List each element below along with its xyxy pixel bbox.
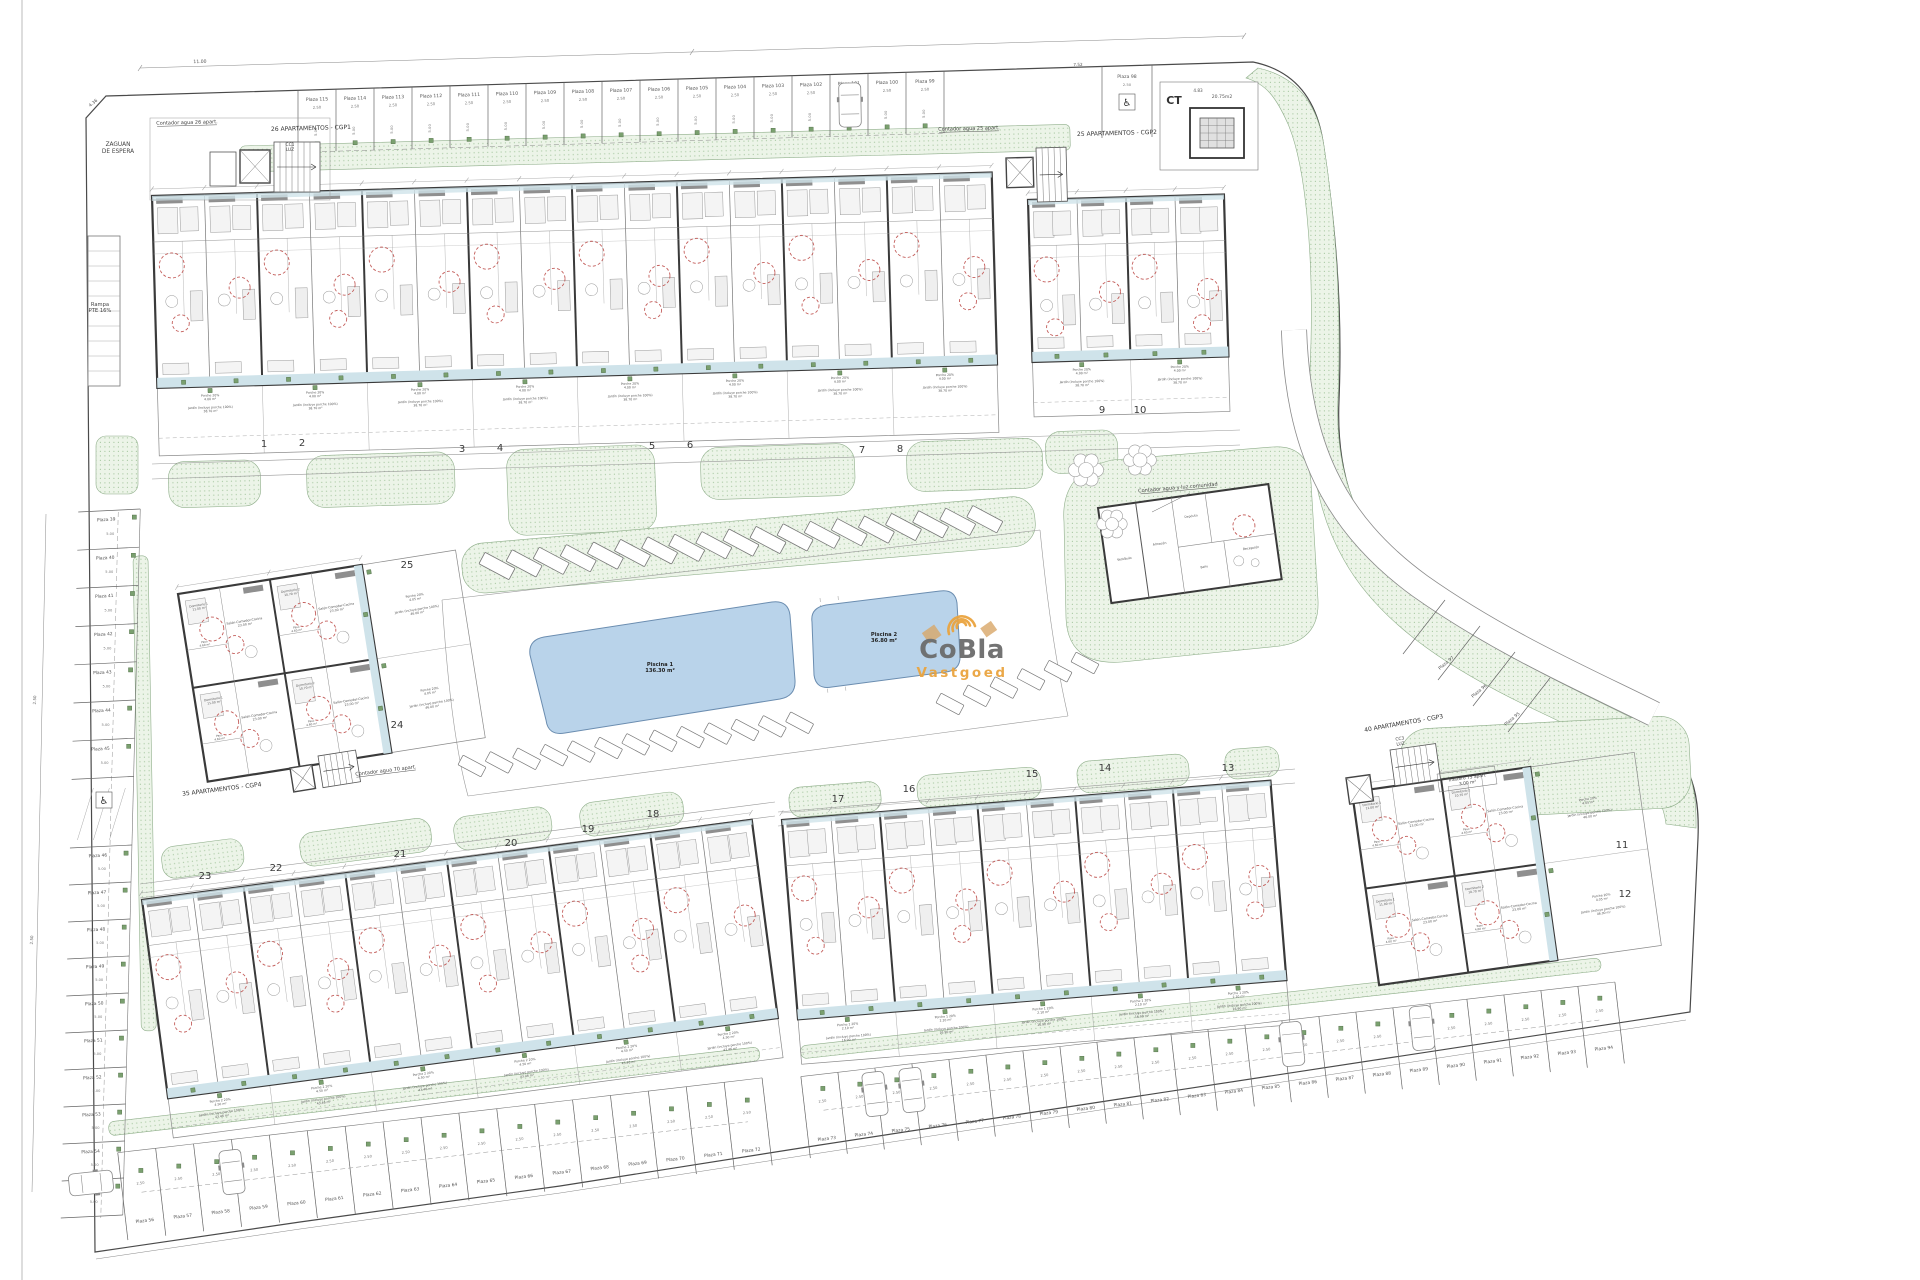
text-label: 5.00: [98, 867, 107, 871]
green-area: [298, 817, 433, 868]
plaza-label: Plaza 114: [344, 95, 367, 102]
accessible-icon: ♿: [100, 796, 109, 807]
text-label: Porche 20%4.00 m²: [621, 381, 640, 389]
plaza-label: Plaza 98: [1117, 74, 1136, 80]
plaza-label: Plaza 108: [572, 89, 595, 96]
text-label: Jardín (incluye porche 100%)46.00 m²: [393, 604, 439, 619]
text-label: 2.50: [250, 1168, 259, 1173]
text-label: 2.50: [503, 99, 512, 104]
text-label: 2.50: [693, 93, 702, 98]
plaza-label: Plaza 48: [87, 927, 106, 934]
text-label: 5.00: [731, 115, 736, 124]
text-label: 2.50: [883, 88, 892, 93]
elevator: [240, 150, 270, 183]
text-label: 2.50: [1262, 1047, 1271, 1052]
plaza-label: Plaza 62: [363, 1191, 382, 1199]
text-label: Porche 20%4.05 m²: [405, 592, 424, 602]
text-label: Porche 1 20%2.10 m²: [1032, 1006, 1054, 1015]
text-label: 2.50: [1040, 1073, 1049, 1078]
text-label: 5.00: [105, 570, 114, 574]
plaza-label: Plaza 60: [287, 1199, 306, 1207]
text-label: 2.50: [326, 1159, 335, 1164]
dim-label: 7.52: [1073, 62, 1083, 67]
text-label: Porche 2 20%4.50 m²: [717, 1030, 739, 1040]
cgp2-label: 25 APARTAMENTOS - CGP2: [1077, 129, 1157, 138]
text-label: 2.50: [1225, 1051, 1234, 1056]
car: [68, 1168, 114, 1198]
text-label: Porche 1 20%2.10 m²: [837, 1022, 859, 1031]
plaza-label: Plaza 56: [135, 1217, 154, 1225]
plaza-label: Plaza 61: [325, 1195, 344, 1203]
building-number-6: 6: [687, 440, 693, 451]
plaza-label: Plaza 57: [173, 1213, 192, 1221]
plaza-label: Plaza 53: [82, 1112, 101, 1119]
text-label: Porche 20%4.00 m²: [831, 376, 850, 384]
text-label: 2.50: [629, 1124, 638, 1129]
text-label: Jardín (incluye porche 100%)38.70 m²: [712, 390, 758, 399]
ct-area: 20.75m2: [1212, 94, 1233, 100]
text-label: 5.00: [90, 1200, 99, 1204]
ct-label: CT: [1166, 94, 1182, 107]
building-number-14: 14: [1099, 763, 1112, 774]
plaza-label: Plaza 110: [496, 91, 519, 98]
text-label: Porche 20%4.05 m²: [420, 686, 439, 696]
plaza-label: Plaza 68: [590, 1164, 609, 1172]
text-label: 5.00: [693, 116, 698, 125]
text-label: 5.00: [104, 608, 113, 612]
green-area: [168, 460, 261, 508]
text-label: 5.00: [106, 532, 115, 536]
plaza-label: Plaza 78: [1002, 1113, 1021, 1121]
building-number-3: 3: [459, 444, 465, 455]
text-label: 2.50: [1123, 82, 1132, 87]
plaza-label: Plaza 82: [1150, 1096, 1169, 1104]
plaza-label: Plaza 58: [211, 1208, 230, 1216]
plaza-label: Plaza 70: [666, 1155, 685, 1163]
text-label: Porche 20%4.00 m²: [726, 379, 745, 387]
plaza-label: Plaza 50: [85, 1001, 104, 1008]
text-label: 5.00: [94, 1015, 103, 1019]
building-number-7: 7: [859, 445, 865, 456]
text-label: 2.50: [667, 1119, 676, 1124]
text-label: 2.50: [591, 1128, 600, 1133]
building-number-2: 2: [299, 438, 305, 449]
text-label: 2.50: [313, 105, 322, 110]
plaza-label: Plaza 102: [800, 82, 823, 89]
elevator: [1006, 157, 1034, 187]
text-label: Jardín (incluye porche 100%)38.70 m²: [187, 405, 233, 414]
building-number-4: 4: [497, 443, 503, 454]
text-label: 5.00: [351, 126, 356, 135]
pool-label: Piscina 1136.30 m²: [645, 662, 675, 674]
plaza-label: Plaza 83: [1187, 1092, 1206, 1100]
plaza-label: Plaza 65: [476, 1177, 495, 1185]
building-block-13-17: Porche 1 20%2.10 m²Jardín (incluye porch…: [779, 771, 1292, 1064]
text-label: 2.50: [1188, 1056, 1197, 1061]
plaza-label: Plaza 87: [1335, 1075, 1354, 1083]
building-block-9-10: Porche 20%4.00 m²Jardín (incluye porche …: [1026, 185, 1232, 417]
text-label: 2.50: [1003, 1077, 1012, 1082]
text-label: Porche 2 20%4.50 m²: [413, 1070, 435, 1080]
dim-label: 4.83: [1193, 88, 1203, 93]
plaza-label: Plaza 106: [648, 86, 671, 93]
text-label: 2.50: [921, 87, 930, 92]
plaza-label: Plaza 113: [382, 94, 405, 101]
text-label: 2.50: [1151, 1060, 1160, 1065]
elevator: [290, 765, 316, 792]
building-number-23: 23: [199, 871, 212, 882]
text-label: 2.50: [288, 1163, 297, 1168]
text-label: Jardín (incluye porche 100%)38.70 m²: [292, 402, 338, 411]
cobla-logo-name: CoBla: [916, 637, 1008, 664]
text-label: Porche 20%4.00 m²: [936, 373, 955, 381]
building-number-25: 25: [401, 560, 414, 571]
building-number-22: 22: [270, 863, 283, 874]
stairs: [1036, 147, 1067, 202]
text-label: 5.00: [617, 118, 622, 127]
text-label: 2.50: [136, 1181, 145, 1186]
text-label: 5.00: [102, 723, 111, 727]
building-number-24: 24: [391, 720, 404, 731]
text-label: 2.50: [465, 100, 474, 105]
site-plan-sheet: Plaza 1152.505.00Plaza 1142.505.00Plaza …: [0, 0, 1920, 1280]
dim-label: 4.36: [88, 98, 100, 109]
plaza-label: Plaza 49: [86, 964, 105, 971]
text-label: 5.00: [465, 122, 470, 131]
building-number-12: 12: [1619, 889, 1632, 900]
text-label: 5.00: [769, 113, 774, 122]
plaza-label: Plaza 94: [1594, 1045, 1613, 1053]
pool-area: Piscina 1136.30 m²Piscina 236.80 m²: [530, 591, 960, 734]
plaza-label: Plaza 81: [1113, 1101, 1132, 1109]
text-label: Porche 20%4.00 m²: [1073, 367, 1092, 375]
walkway-line: [1040, 530, 1068, 716]
plaza-label: Plaza 46: [88, 853, 107, 860]
text-label: 2.50: [212, 1172, 221, 1177]
logo-spiral: [948, 616, 975, 634]
building-number-19: 19: [582, 824, 595, 835]
plaza-label: Plaza 86: [1298, 1079, 1317, 1087]
text-label: 2.50: [553, 1132, 562, 1137]
text-label: Porche 2 20%4.50 m²: [209, 1097, 231, 1107]
plaza-label: Plaza 109: [534, 90, 557, 97]
car: [837, 83, 864, 127]
text-label: 5.00: [807, 112, 812, 121]
building-number-21: 21: [394, 849, 407, 860]
plaza-label: Plaza 45: [91, 746, 110, 753]
cc1-label: CC1LUZ: [286, 142, 295, 153]
zaguan-label: ZAGUANDE ESPERA: [102, 142, 134, 155]
plaza-label: Plaza 115: [306, 96, 329, 103]
plaza-label: Plaza 77: [965, 1118, 984, 1126]
text-label: 5.00: [93, 1052, 102, 1056]
building-number-20: 20: [505, 838, 518, 849]
plaza-label: Plaza 76: [928, 1122, 947, 1130]
text-label: 2.50: [1484, 1021, 1493, 1026]
plaza-label: Plaza 92: [1520, 1053, 1539, 1061]
text-label: 5.00: [883, 110, 888, 119]
green-area: [306, 451, 456, 508]
green-area: [452, 805, 554, 852]
text-label: 2.50: [389, 102, 398, 107]
car: [859, 1071, 890, 1118]
text-label: 2.50: [655, 94, 664, 99]
building-number-10: 10: [1134, 405, 1147, 416]
cgp1-label: 26 APARTAMENTOS - CGP1: [271, 124, 351, 133]
text-label: 2.50: [364, 1154, 373, 1159]
plaza-label: Plaza 100: [876, 80, 899, 87]
text-label: 2.50: [807, 90, 816, 95]
stairs: [318, 750, 361, 788]
text-label: 2.50: [1077, 1069, 1086, 1074]
text-label: 5.00: [102, 685, 111, 689]
plaza-label: Plaza 54: [81, 1149, 100, 1156]
stairs: [274, 142, 320, 192]
building-block-24-25: Porche 20%4.05 m²Jardín (incluye porche …: [175, 541, 486, 782]
green-area: [96, 436, 138, 494]
green-area: [506, 444, 657, 536]
text-label: 2.50: [1558, 1013, 1567, 1018]
dim-label: 2.50: [32, 695, 37, 705]
text-label: 2.50: [515, 1137, 524, 1142]
text-label: 2.50: [966, 1082, 975, 1087]
text-label: 2.50: [351, 103, 360, 108]
text-label: Porche 20%4.00 m²: [201, 393, 220, 401]
plaza-label: Plaza 107: [610, 87, 633, 94]
plaza-label: Plaza 63: [401, 1186, 420, 1194]
text-label: 5.00: [427, 124, 432, 133]
text-label: Porche 20%4.00 m²: [1171, 365, 1190, 373]
plaza-label: Plaza 88: [1372, 1070, 1391, 1078]
text-label: 5.00: [655, 117, 660, 126]
building-number-16: 16: [903, 784, 916, 795]
plaza-label: Plaza 71: [704, 1151, 723, 1159]
plaza-label: Plaza 69: [628, 1160, 647, 1168]
plaza-label: Plaza 84: [1224, 1088, 1243, 1096]
cc3-label: CC3LUZ: [1395, 735, 1406, 747]
text-label: 5.00: [503, 121, 508, 130]
text-label: Jardín (incluye porche 100%)46.00 m²: [1580, 904, 1626, 918]
text-label: 2.50: [579, 97, 588, 102]
plaza-label: Plaza 89: [1409, 1066, 1428, 1074]
text-label: Jardín (incluye porche 100%)38.70 m²: [922, 384, 968, 393]
text-label: 2.50: [402, 1150, 411, 1155]
plaza-label: Plaza 51: [84, 1038, 103, 1045]
car: [1407, 1005, 1437, 1051]
text-label: 2.50: [477, 1141, 486, 1146]
plaza-label: Plaza 43: [93, 669, 112, 676]
text-label: Jardín (incluye porche 100%)38.70 m²: [397, 399, 443, 408]
green-area: [906, 438, 1044, 492]
plaza-label: Plaza 96: [1470, 683, 1488, 700]
pool-label: Piscina 236.80 m²: [871, 632, 898, 644]
text-label: 5.00: [97, 904, 106, 908]
elevator: [1346, 775, 1373, 804]
text-label: 2.50: [1336, 1039, 1345, 1044]
text-label: Jardín (incluye porche 100%)46.00 m²: [408, 698, 454, 713]
text-label: Porche 20%4.00 m²: [306, 390, 325, 398]
plaza-label: Plaza 111: [458, 92, 481, 99]
text-label: 2.50: [818, 1099, 827, 1104]
text-label: Porche 2 20%4.50 m²: [514, 1057, 536, 1067]
text-label: 5.00: [92, 1089, 101, 1093]
text-label: 2.50: [1595, 1008, 1604, 1013]
text-label: 2.50: [929, 1086, 938, 1091]
text-label: Jardín (incluye porche 100%)38.70 m²: [817, 387, 863, 396]
text-label: 5.00: [103, 647, 112, 651]
plaza-label: Plaza 66: [514, 1173, 533, 1181]
text-label: Porche 2 20%4.50 m²: [311, 1084, 333, 1094]
stairs: [1390, 744, 1441, 786]
text-label: 5.00: [101, 761, 110, 765]
green-area: [700, 443, 856, 500]
plaza-label: Plaza 99: [915, 78, 935, 85]
plaza-label: Plaza 93: [1557, 1049, 1576, 1057]
building-number-11: 11: [1616, 840, 1629, 851]
cobla-logo: CoBla Vastgoed: [916, 602, 1008, 681]
text-label: Jardín (incluye porche 100%)38.70 m²: [1157, 376, 1203, 385]
plaza-label: Plaza 59: [249, 1204, 268, 1212]
plaza-label: Plaza 42: [94, 631, 113, 638]
building-number-1: 1: [261, 439, 267, 450]
building-number-15: 15: [1026, 769, 1039, 780]
text-label: 2.50: [743, 1110, 752, 1115]
building-number-5: 5: [649, 441, 655, 452]
parking-row-left: Plaza 395.00Plaza 405.00Plaza 415.00Plaz…: [61, 509, 140, 1218]
building-number-8: 8: [897, 444, 903, 455]
plaza-label: Plaza 75: [891, 1126, 910, 1134]
text-label: 5.00: [921, 109, 926, 118]
dim-label: 11.00: [193, 59, 206, 65]
building-number-13: 13: [1222, 763, 1235, 774]
text-label: Porche 2 20%4.50 m²: [616, 1044, 638, 1054]
cobla-logo-sub: Vastgoed: [916, 665, 1008, 681]
plaza-label: Plaza 52: [83, 1075, 102, 1082]
text-label: Jardín (incluye porche 100%)38.70 m²: [502, 396, 548, 405]
text-label: 2.50: [1114, 1064, 1123, 1069]
text-label: Porche 1 20%2.10 m²: [1130, 998, 1152, 1007]
text-label: 2.50: [541, 98, 550, 103]
plaza-label: Plaza 44: [92, 708, 111, 715]
text-label: 5.00: [95, 978, 104, 982]
ramp-label: RampaPTE 16%: [89, 302, 112, 314]
plaza-label: Plaza 39: [97, 517, 116, 524]
plaza-label: Plaza 80: [1076, 1105, 1095, 1113]
text-label: 2.50: [1373, 1034, 1382, 1039]
plaza-label: Plaza 105: [686, 85, 709, 92]
text-label: 2.50: [617, 96, 626, 101]
accessible-icon: ♿: [1123, 98, 1132, 109]
plaza-label: Plaza 103: [762, 83, 785, 90]
text-label: 5.00: [92, 1126, 101, 1130]
text-label: 2.50: [731, 92, 740, 97]
text-label: 2.50: [427, 101, 436, 106]
text-label: 2.50: [174, 1176, 183, 1181]
building-number-9: 9: [1099, 405, 1105, 416]
plaza-label: Plaza 104: [724, 84, 747, 91]
text-label: 5.00: [389, 125, 394, 134]
ct-station: CT20.75m2: [1160, 82, 1258, 170]
plaza-label: Plaza 47: [88, 890, 107, 897]
text-label: 5.00: [541, 120, 546, 129]
car: [216, 1149, 247, 1196]
plaza-label: Plaza 67: [552, 1169, 571, 1177]
text-label: 2.50: [705, 1115, 714, 1120]
text-label: Porche 1 20%2.10 m²: [935, 1014, 957, 1023]
text-label: 2.50: [1447, 1026, 1456, 1031]
cgp4-label: 35 APARTAMENTOS - CGP4: [182, 781, 262, 798]
plaza-label: Plaza 112: [420, 93, 443, 100]
text-label: 2.50: [855, 1094, 864, 1099]
plaza-label: Plaza 72: [742, 1147, 761, 1155]
dim-label: 2.50: [29, 935, 34, 945]
text-label: 5.00: [96, 941, 105, 945]
text-label: Porche 20%4.00 m²: [516, 384, 535, 392]
car: [1277, 1021, 1307, 1067]
building-block-1-8: Porche 20%4.00 m²Jardín (incluye porche …: [150, 163, 1001, 456]
text-label: 2.50: [769, 91, 778, 96]
plaza-label: Plaza 41: [95, 593, 114, 600]
plaza-label: Plaza 64: [439, 1182, 458, 1190]
building-number-17: 17: [832, 794, 845, 805]
text-label: Porche 20%4.05 m²: [1592, 892, 1611, 902]
text-label: 2.50: [1521, 1017, 1530, 1022]
text-label: Jardín (incluye porche 100%)38.70 m²: [1059, 379, 1105, 388]
plaza-label: Plaza 73: [817, 1135, 836, 1143]
plaza-label: Plaza 90: [1446, 1062, 1465, 1070]
building-number-18: 18: [647, 809, 660, 820]
text-label: Porche 20%4.00 m²: [411, 387, 430, 395]
car: [896, 1067, 927, 1114]
text-label: 5.00: [91, 1163, 100, 1167]
text-label: 2.50: [892, 1090, 901, 1095]
text-label: 5.00: [579, 119, 584, 128]
text-label: Jardín (incluye porche 100%)38.70 m²: [607, 393, 653, 402]
parking-accessible-98: Plaza 982.50♿: [1102, 65, 1152, 138]
plaza-label: Plaza 40: [96, 555, 115, 562]
plaza-label: Plaza 91: [1483, 1058, 1502, 1066]
text-label: 2.50: [439, 1146, 448, 1151]
